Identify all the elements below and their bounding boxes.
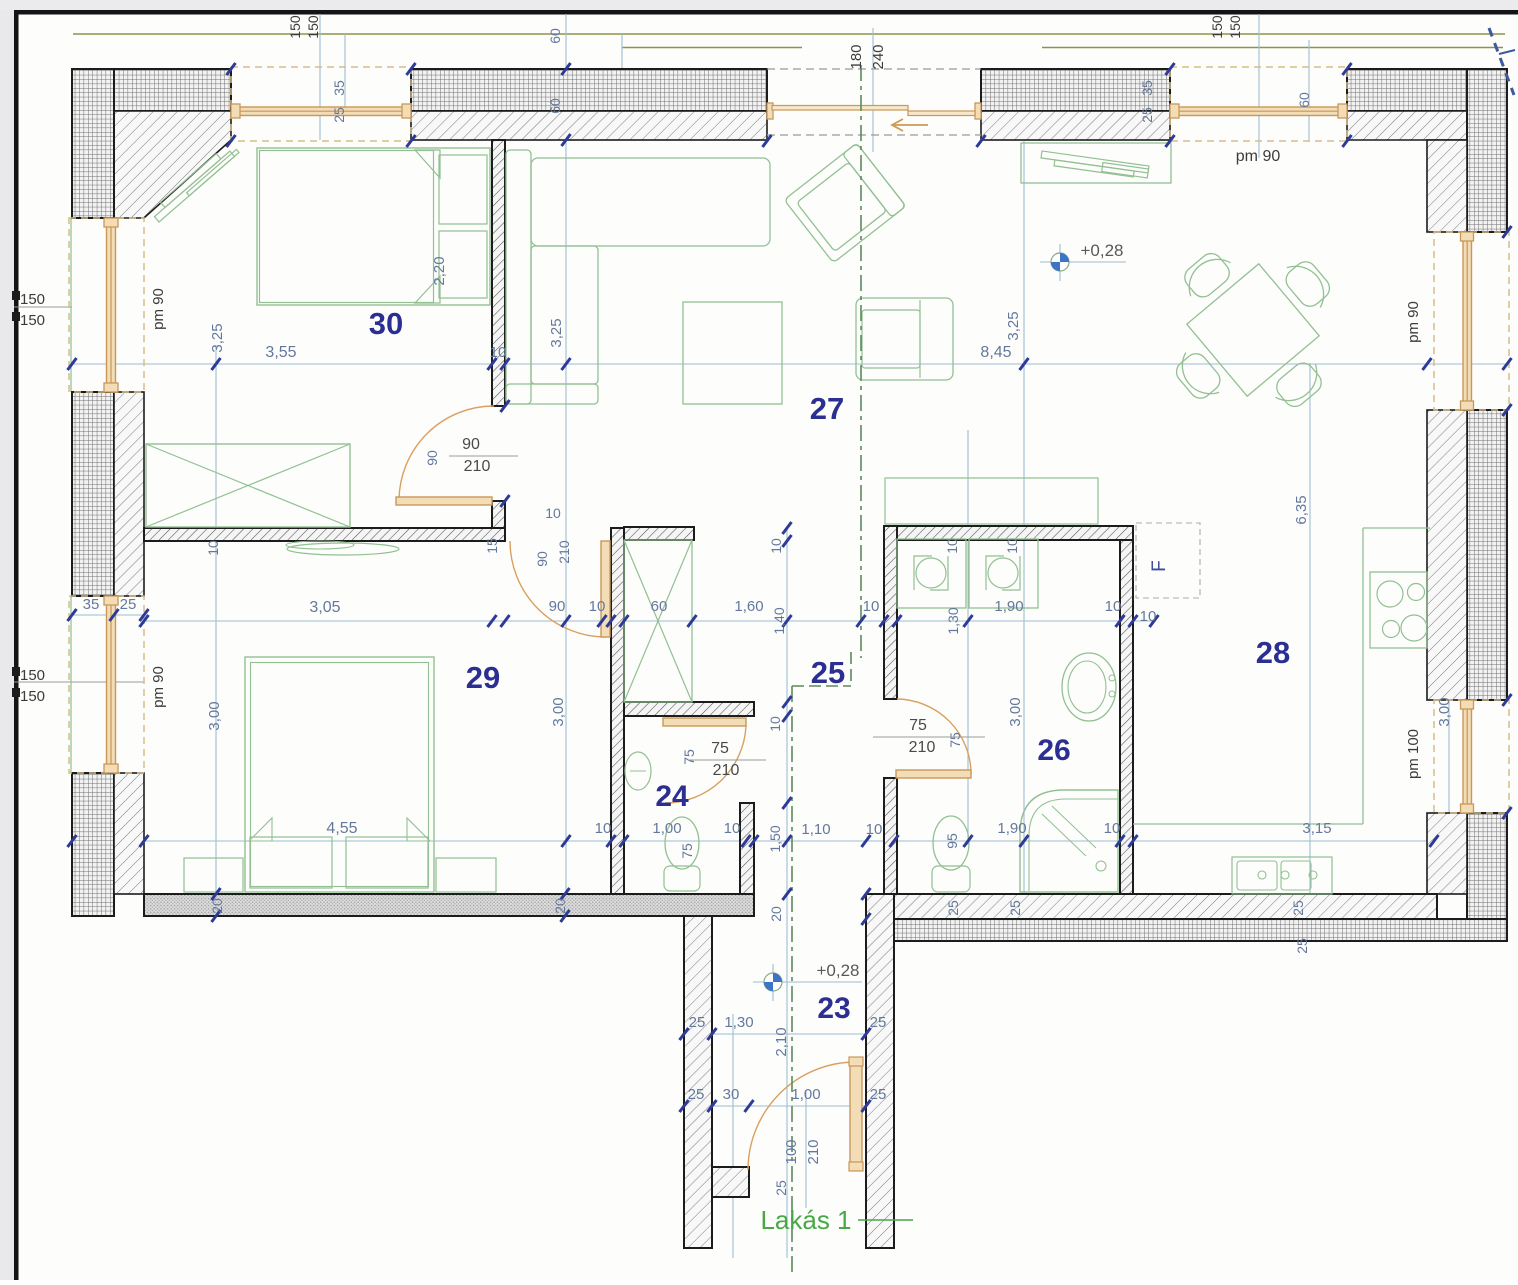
svg-text:1,50: 1,50 [767, 825, 783, 852]
svg-text:90: 90 [549, 598, 566, 615]
svg-text:150: 150 [287, 15, 303, 39]
svg-text:210: 210 [805, 1139, 822, 1164]
svg-text:10: 10 [768, 538, 784, 554]
svg-text:150: 150 [1227, 15, 1243, 39]
svg-text:240: 240 [870, 44, 887, 69]
svg-text:90: 90 [424, 450, 440, 466]
svg-text:1,90: 1,90 [994, 598, 1023, 615]
svg-text:10: 10 [1104, 820, 1121, 837]
svg-text:pm 90: pm 90 [1405, 301, 1422, 343]
svg-text:+0,28: +0,28 [1080, 241, 1123, 260]
svg-text:1,30: 1,30 [945, 607, 961, 634]
svg-text:25: 25 [870, 1086, 887, 1103]
svg-text:90: 90 [462, 436, 480, 453]
svg-text:3,25: 3,25 [209, 323, 226, 352]
svg-text:10: 10 [944, 538, 960, 554]
svg-text:pm 90: pm 90 [150, 288, 167, 330]
svg-text:10: 10 [490, 344, 507, 361]
svg-text:pm 90: pm 90 [1236, 148, 1281, 165]
svg-text:10: 10 [1004, 538, 1020, 554]
svg-text:75: 75 [947, 732, 963, 748]
svg-text:75: 75 [909, 717, 927, 734]
svg-text:1,90: 1,90 [997, 820, 1026, 837]
svg-text:25: 25 [870, 1014, 887, 1031]
svg-text:3,25: 3,25 [1005, 311, 1022, 340]
svg-text:29: 29 [466, 660, 500, 695]
svg-text:60: 60 [651, 598, 668, 615]
svg-text:150: 150 [1209, 15, 1225, 39]
svg-text:25: 25 [1139, 107, 1155, 123]
svg-text:6,35: 6,35 [1293, 495, 1310, 524]
svg-text:100: 100 [783, 1139, 800, 1164]
svg-text:4,55: 4,55 [326, 820, 357, 837]
svg-text:1,40: 1,40 [771, 607, 787, 634]
svg-text:F: F [1149, 560, 1170, 572]
svg-text:95: 95 [944, 833, 960, 849]
svg-text:25: 25 [1007, 900, 1023, 916]
svg-text:10: 10 [724, 820, 741, 837]
svg-text:20: 20 [209, 898, 225, 914]
svg-text:1,10: 1,10 [801, 821, 830, 838]
svg-text:pm 90: pm 90 [150, 666, 167, 708]
svg-text:60: 60 [1296, 92, 1312, 108]
svg-text:25: 25 [331, 107, 347, 123]
svg-text:150: 150 [20, 291, 45, 308]
svg-text:35: 35 [331, 80, 347, 96]
svg-text:10: 10 [767, 716, 783, 732]
svg-text:25: 25 [945, 900, 961, 916]
svg-text:25: 25 [689, 1014, 706, 1031]
svg-text:210: 210 [713, 762, 740, 779]
svg-text:75: 75 [679, 843, 695, 859]
svg-text:35: 35 [1139, 80, 1155, 96]
svg-text:10: 10 [595, 820, 612, 837]
svg-text:23: 23 [817, 992, 850, 1025]
svg-text:25: 25 [688, 1086, 705, 1103]
svg-text:35: 35 [83, 596, 100, 613]
svg-text:25: 25 [120, 596, 137, 613]
svg-text:10: 10 [589, 598, 606, 615]
svg-text:3,00: 3,00 [206, 701, 223, 730]
svg-text:27: 27 [810, 391, 844, 426]
svg-text:+0,28: +0,28 [816, 961, 859, 980]
svg-text:10: 10 [205, 540, 221, 556]
svg-text:60: 60 [547, 28, 563, 44]
svg-text:2,20: 2,20 [431, 256, 448, 285]
svg-text:150: 150 [20, 312, 45, 329]
svg-text:1,00: 1,00 [652, 820, 681, 837]
svg-text:150: 150 [20, 688, 45, 705]
svg-text:60: 60 [547, 98, 563, 114]
svg-text:75: 75 [711, 740, 729, 757]
svg-text:10: 10 [545, 505, 561, 521]
svg-text:10: 10 [866, 821, 883, 838]
svg-text:8,45: 8,45 [980, 344, 1011, 361]
svg-text:3,15: 3,15 [1302, 820, 1331, 837]
svg-text:Lakás 1: Lakás 1 [760, 1205, 851, 1235]
svg-text:pm 100: pm 100 [1405, 729, 1422, 779]
svg-text:26: 26 [1037, 734, 1070, 767]
svg-text:150: 150 [305, 15, 321, 39]
svg-text:25: 25 [773, 1180, 789, 1196]
svg-text:150: 150 [20, 667, 45, 684]
svg-text:25: 25 [1294, 938, 1310, 954]
svg-text:2,10: 2,10 [773, 1027, 790, 1056]
svg-text:90: 90 [534, 551, 550, 567]
svg-text:10: 10 [1105, 598, 1122, 615]
svg-text:20: 20 [768, 906, 784, 922]
svg-text:25: 25 [811, 655, 845, 690]
svg-text:3,00: 3,00 [1436, 697, 1453, 726]
svg-text:24: 24 [655, 780, 689, 813]
svg-text:3,05: 3,05 [309, 599, 340, 616]
svg-text:1,30: 1,30 [724, 1014, 753, 1031]
svg-text:180: 180 [848, 44, 865, 69]
svg-text:3,00: 3,00 [550, 697, 567, 726]
svg-text:210: 210 [556, 540, 572, 564]
svg-text:20: 20 [552, 898, 568, 914]
svg-text:210: 210 [909, 739, 936, 756]
svg-text:15: 15 [484, 538, 500, 554]
svg-text:3,00: 3,00 [1007, 697, 1024, 726]
svg-text:75: 75 [681, 749, 697, 765]
svg-text:10: 10 [1140, 608, 1157, 625]
svg-text:30: 30 [723, 1086, 740, 1103]
svg-text:1,60: 1,60 [734, 598, 763, 615]
svg-text:25: 25 [1290, 900, 1306, 916]
svg-text:30: 30 [369, 306, 403, 341]
svg-text:1,00: 1,00 [791, 1086, 820, 1103]
svg-text:3,55: 3,55 [265, 344, 296, 361]
svg-text:28: 28 [1256, 635, 1290, 670]
svg-text:10: 10 [863, 598, 880, 615]
svg-text:210: 210 [464, 458, 491, 475]
svg-text:3,25: 3,25 [548, 318, 565, 347]
